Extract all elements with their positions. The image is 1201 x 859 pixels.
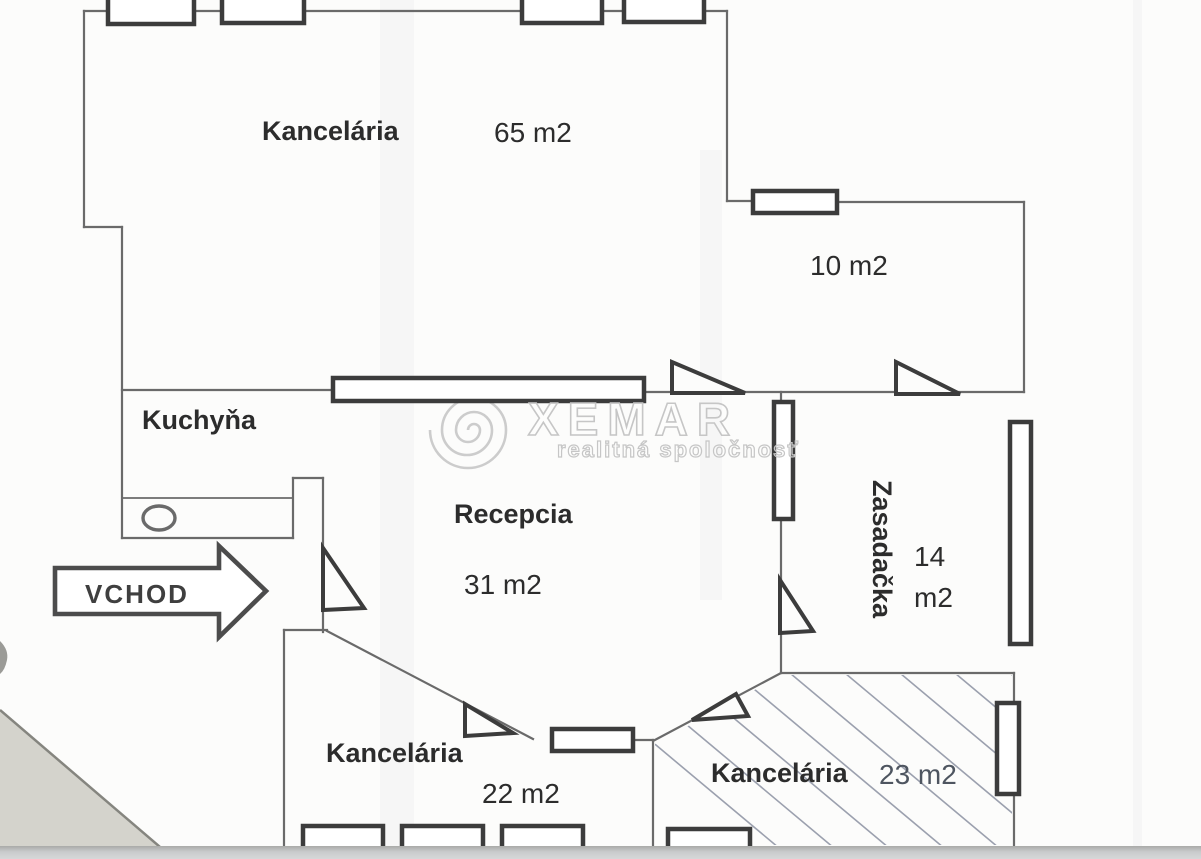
room-label-office-se: Kancelária (711, 758, 848, 789)
window-symbol (753, 191, 837, 213)
window-symbol (997, 703, 1019, 794)
window-symbol (222, 0, 304, 23)
room-label-office-sw: Kancelária (326, 738, 463, 769)
room-label-kitchen: Kuchyňa (142, 405, 256, 436)
door-swing-icon (780, 580, 813, 633)
watermark-spiral-icon (430, 398, 506, 468)
door-swing-icon (692, 694, 748, 720)
window-symbol (1010, 422, 1031, 644)
watermark-tagline: realitná spoločnosť (557, 437, 800, 463)
window-symbol (624, 0, 704, 22)
window-symbol (522, 0, 602, 23)
room-area-small-room: 10 m2 (810, 250, 888, 282)
window-symbol (108, 0, 194, 24)
hatch-pattern (540, 648, 1201, 853)
room-area-meeting: 14 m2 (914, 537, 978, 618)
room-area-office-se: 23 m2 (879, 759, 957, 791)
door-swing-icon (323, 548, 364, 610)
room-area-office-sw: 22 m2 (482, 778, 560, 810)
room-area-office-large: 65 m2 (494, 117, 572, 149)
entrance-label: VCHOD (57, 579, 217, 610)
room-label-reception: Recepcia (454, 499, 573, 530)
room-label-office-large: Kancelária (262, 116, 399, 147)
window-symbol (552, 729, 633, 751)
door-swing-icon (896, 362, 960, 394)
room-area-reception: 31 m2 (464, 569, 542, 601)
floor-plan-scan: XEMAR realitná spoločnosť Kancelária 65 … (0, 0, 1201, 859)
room-label-meeting: Zasadačka (863, 469, 897, 629)
door-swing-icon (465, 704, 513, 736)
sink-icon (143, 506, 175, 530)
scan-shadow (0, 846, 1201, 859)
